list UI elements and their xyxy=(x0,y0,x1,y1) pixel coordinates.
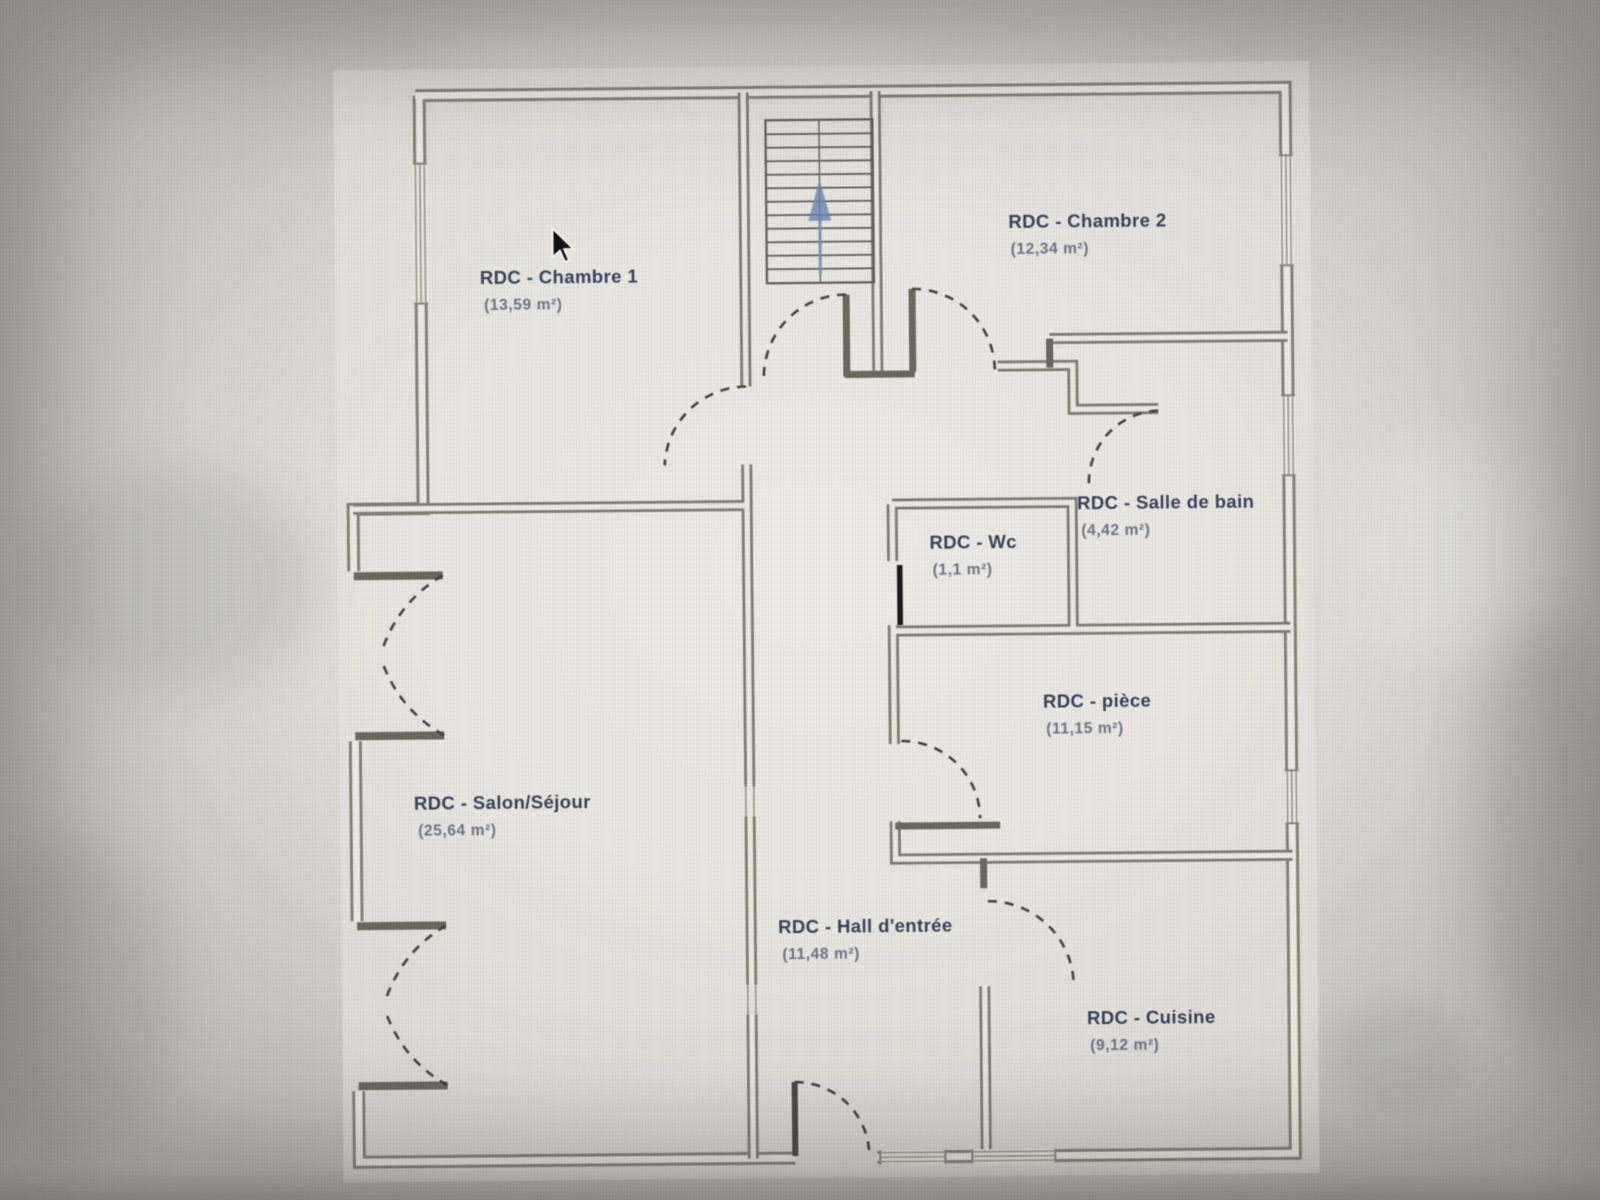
room-label-chambre-2: RDC - Chambre 2 xyxy=(1008,209,1166,232)
floor-plan-wrapper: RDC - Chambre 1 (13,59 m²) RDC - Chambre… xyxy=(0,0,1600,1200)
room-area-piece: (11,15 m²) xyxy=(1046,720,1124,738)
room-label-cuisine: RDC - Cuisine xyxy=(1087,1006,1216,1028)
room-label-chambre-1: RDC - Chambre 1 xyxy=(480,266,638,289)
screen-photo: RDC - Chambre 1 (13,59 m²) RDC - Chambre… xyxy=(0,0,1600,1200)
entry-door-leaf xyxy=(795,1082,796,1156)
room-area-hall-entree: (11,48 m²) xyxy=(782,945,860,963)
room-label-wc: RDC - Wc xyxy=(929,531,1017,553)
room-label-salle-de-bain: RDC - Salle de bain xyxy=(1077,491,1254,514)
room-area-chambre-2: (12,34 m²) xyxy=(1011,240,1090,258)
room-label-salon-sejour: RDC - Salon/Séjour xyxy=(414,791,591,814)
room-area-chambre-1: (13,59 m²) xyxy=(484,296,563,314)
room-label-hall-entree: RDC - Hall d'entrée xyxy=(778,915,953,938)
stair-direction-line xyxy=(820,218,821,274)
wc-door-leaf xyxy=(900,565,901,625)
room-area-salon-sejour: (25,64 m²) xyxy=(418,822,497,840)
room-label-piece: RDC - pièce xyxy=(1043,690,1151,712)
room-area-wc: (1,1 m²) xyxy=(933,561,993,579)
floor-plan: RDC - Chambre 1 (13,59 m²) RDC - Chambre… xyxy=(0,0,1600,1200)
room-area-salle-de-bain: (4,42 m²) xyxy=(1081,522,1150,540)
room-area-cuisine: (9,12 m²) xyxy=(1090,1037,1159,1055)
